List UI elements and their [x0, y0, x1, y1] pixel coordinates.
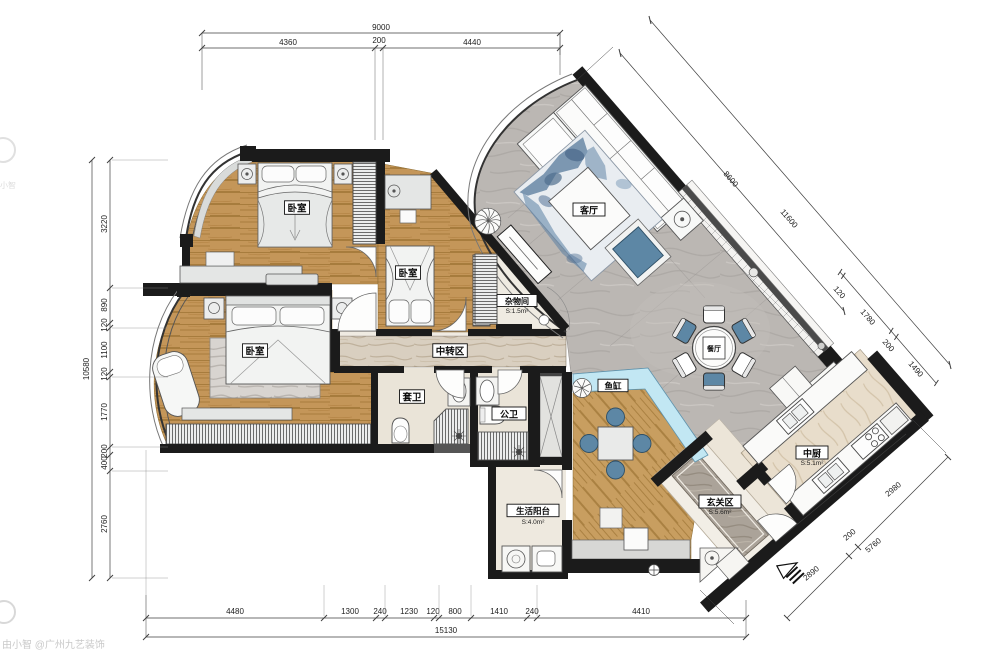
svg-text:4360: 4360 — [279, 38, 297, 47]
svg-text:S:1.5m²: S:1.5m² — [506, 308, 530, 315]
svg-text:1770: 1770 — [100, 403, 109, 421]
svg-text:9000: 9000 — [372, 23, 390, 32]
svg-text:400: 400 — [100, 456, 109, 470]
svg-text:3220: 3220 — [100, 215, 109, 233]
svg-text:4410: 4410 — [632, 607, 650, 616]
svg-text:S:5.6m²: S:5.6m² — [709, 509, 733, 516]
svg-text:1100: 1100 — [100, 341, 109, 359]
svg-text:小智: 小智 — [0, 180, 16, 190]
svg-text:800: 800 — [448, 607, 462, 616]
svg-text:中转区: 中转区 — [436, 346, 465, 358]
svg-text:杂物间: 杂物间 — [505, 296, 529, 306]
svg-text:鱼缸: 鱼缸 — [604, 381, 622, 391]
svg-text:200: 200 — [100, 444, 109, 458]
svg-text:120: 120 — [100, 367, 109, 381]
svg-text:卧室: 卧室 — [398, 268, 418, 280]
svg-text:餐厅: 餐厅 — [706, 344, 721, 353]
svg-text:200: 200 — [372, 36, 386, 45]
svg-text:1410: 1410 — [490, 607, 508, 616]
svg-text:1230: 1230 — [400, 607, 418, 616]
svg-text:由小智 @广州九艺装饰: 由小智 @广州九艺装饰 — [2, 638, 105, 651]
svg-text:生活阳台: 生活阳台 — [516, 506, 551, 516]
svg-text:玄关区: 玄关区 — [706, 496, 733, 507]
svg-text:卧室: 卧室 — [287, 203, 307, 215]
svg-text:中厨: 中厨 — [803, 447, 821, 458]
svg-text:S:4.0m²: S:4.0m² — [522, 519, 546, 526]
svg-text:4440: 4440 — [463, 38, 481, 47]
svg-text:10580: 10580 — [82, 357, 91, 380]
svg-text:120: 120 — [100, 318, 109, 332]
svg-text:套卫: 套卫 — [401, 392, 422, 404]
svg-text:卧室: 卧室 — [245, 346, 265, 358]
svg-text:公卫: 公卫 — [500, 409, 518, 419]
svg-text:890: 890 — [100, 298, 109, 312]
svg-text:2760: 2760 — [100, 515, 109, 533]
svg-text:4480: 4480 — [226, 607, 244, 616]
svg-text:S:5.1m²: S:5.1m² — [801, 460, 825, 467]
svg-text:120: 120 — [426, 607, 440, 616]
svg-text:15130: 15130 — [435, 626, 458, 635]
svg-text:1300: 1300 — [341, 607, 359, 616]
svg-text:客厅: 客厅 — [579, 204, 598, 215]
